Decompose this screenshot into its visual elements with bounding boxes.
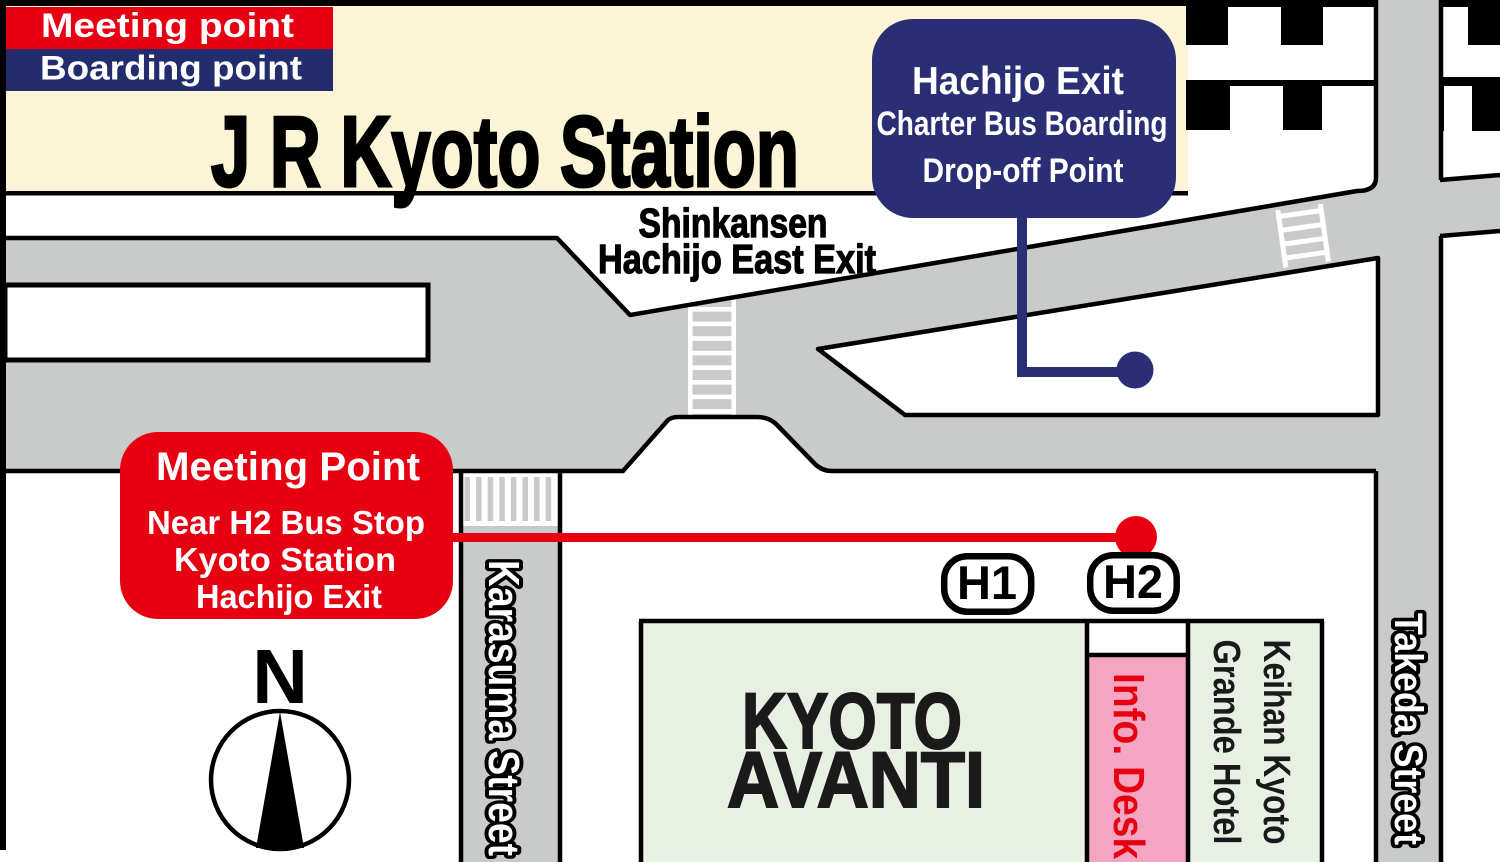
svg-text:Meeting Point: Meeting Point [156,445,420,489]
svg-text:Hachijo Exit: Hachijo Exit [912,60,1124,103]
svg-text:Drop-off Point: Drop-off Point [923,152,1124,190]
svg-text:Karasuma Street: Karasuma Street [479,560,528,856]
svg-text:AVANTI: AVANTI [727,735,985,824]
svg-text:J R Kyoto Station: J R Kyoto Station [211,96,799,208]
svg-text:Hachijo East Exit: Hachijo East Exit [598,236,876,282]
svg-text:Kyoto Station: Kyoto Station [174,541,396,578]
svg-text:Meeting point: Meeting point [41,7,294,45]
svg-text:H2: H2 [1103,555,1163,608]
svg-text:H1: H1 [957,556,1017,609]
svg-text:Grande Hotel: Grande Hotel [1205,640,1247,845]
svg-text:N: N [252,634,308,720]
svg-text:Keihan Kyoto: Keihan Kyoto [1255,640,1297,845]
svg-text:Boarding point: Boarding point [40,50,302,88]
svg-text:Hachijo Exit: Hachijo Exit [196,578,382,615]
svg-text:Info. Desk: Info. Desk [1104,673,1153,859]
svg-text:Near H2 Bus Stop: Near H2 Bus Stop [147,504,425,541]
svg-text:Charter Bus Boarding: Charter Bus Boarding [877,105,1168,143]
svg-text:Takeda Street: Takeda Street [1386,613,1430,845]
